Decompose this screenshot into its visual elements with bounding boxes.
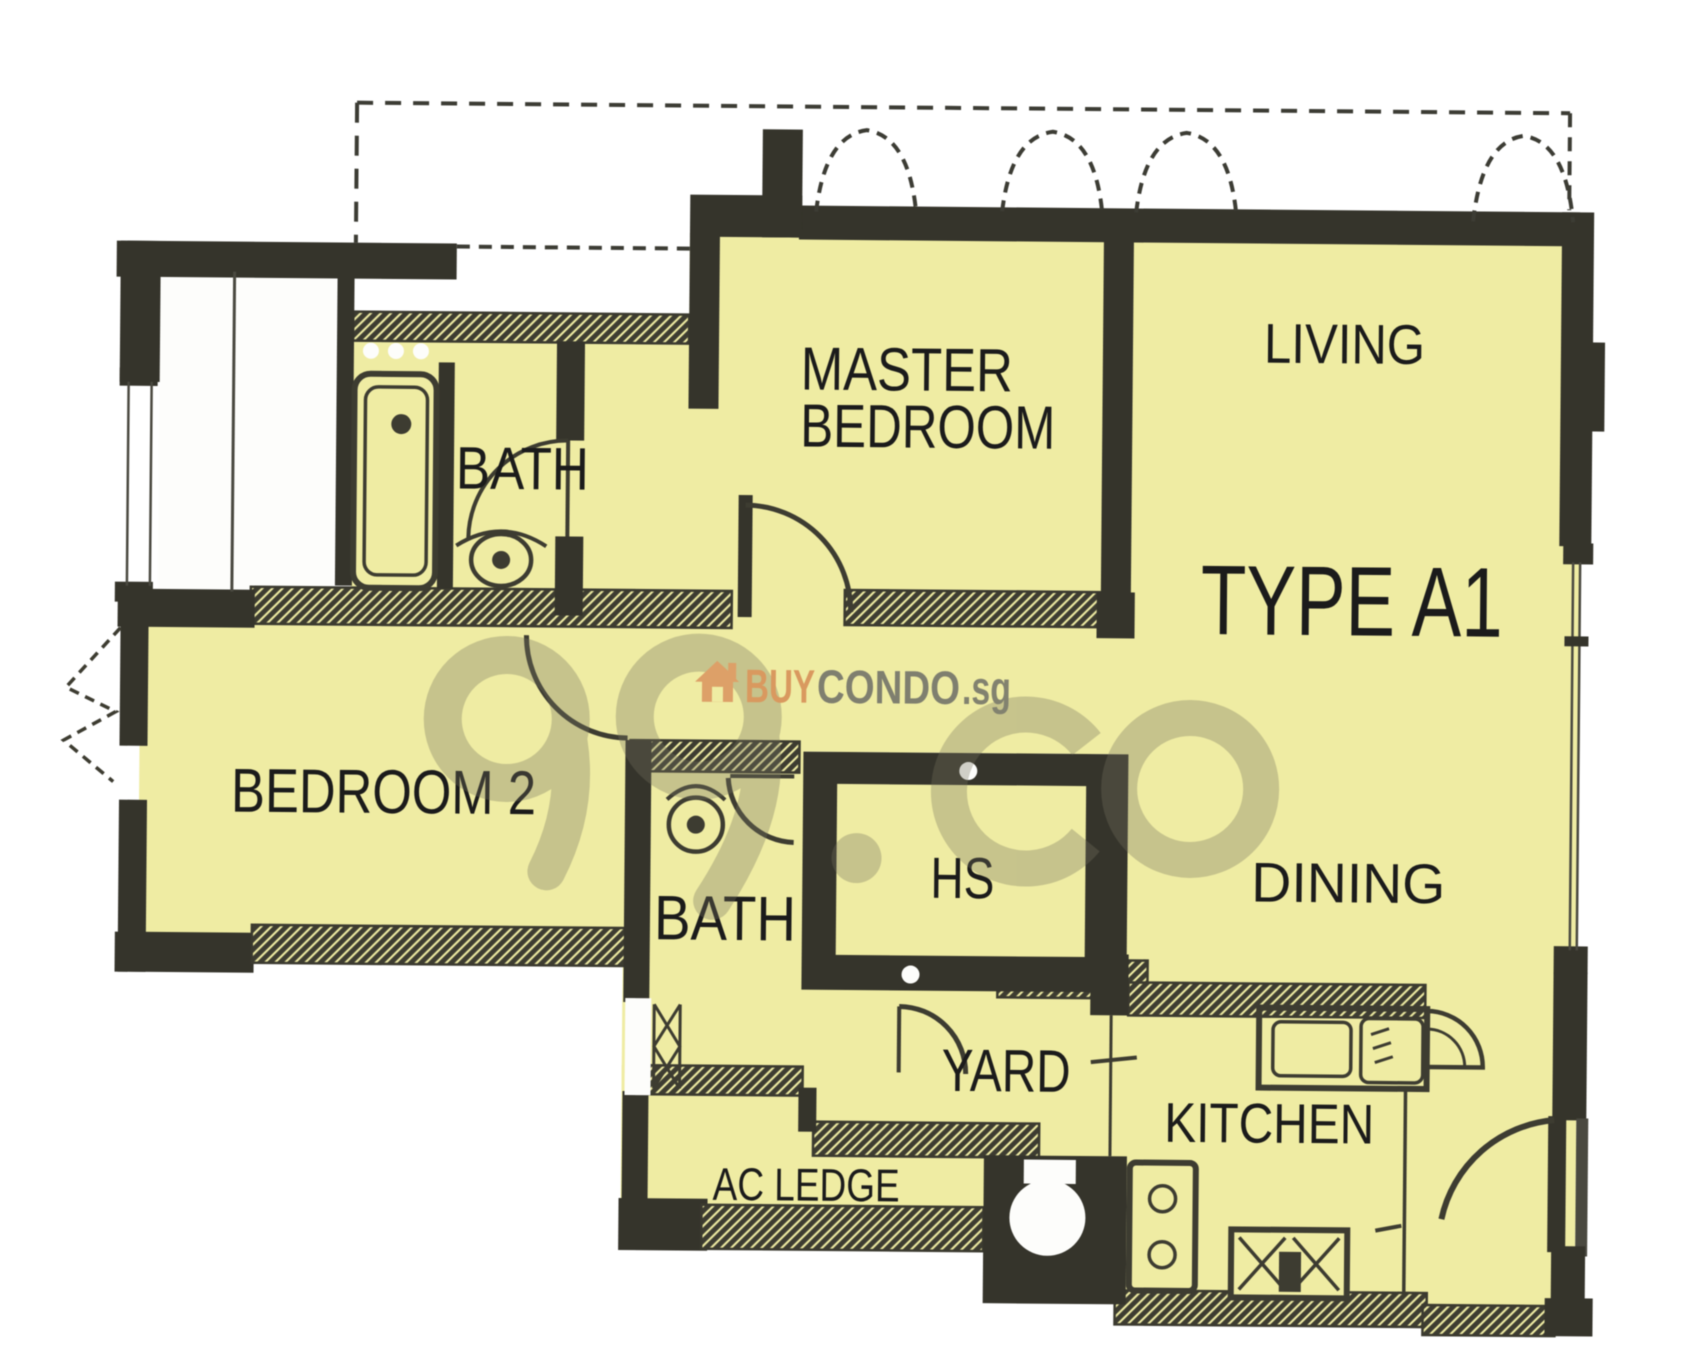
svg-text:.sg: .sg [962, 661, 1011, 714]
svg-text:CONDO: CONDO [817, 660, 960, 714]
svg-text:AC LEDGE: AC LEDGE [712, 1158, 899, 1212]
svg-text:KITCHEN: KITCHEN [1164, 1091, 1375, 1156]
svg-text:BEDROOM: BEDROOM [800, 392, 1056, 462]
svg-text:LIVING: LIVING [1264, 312, 1426, 376]
svg-text:BATH: BATH [456, 435, 590, 503]
svg-text:YARD: YARD [941, 1037, 1071, 1105]
svg-text:TYPE A1: TYPE A1 [1200, 544, 1503, 658]
svg-text:DINING: DINING [1251, 851, 1446, 916]
svg-text:BUY: BUY [745, 659, 815, 713]
